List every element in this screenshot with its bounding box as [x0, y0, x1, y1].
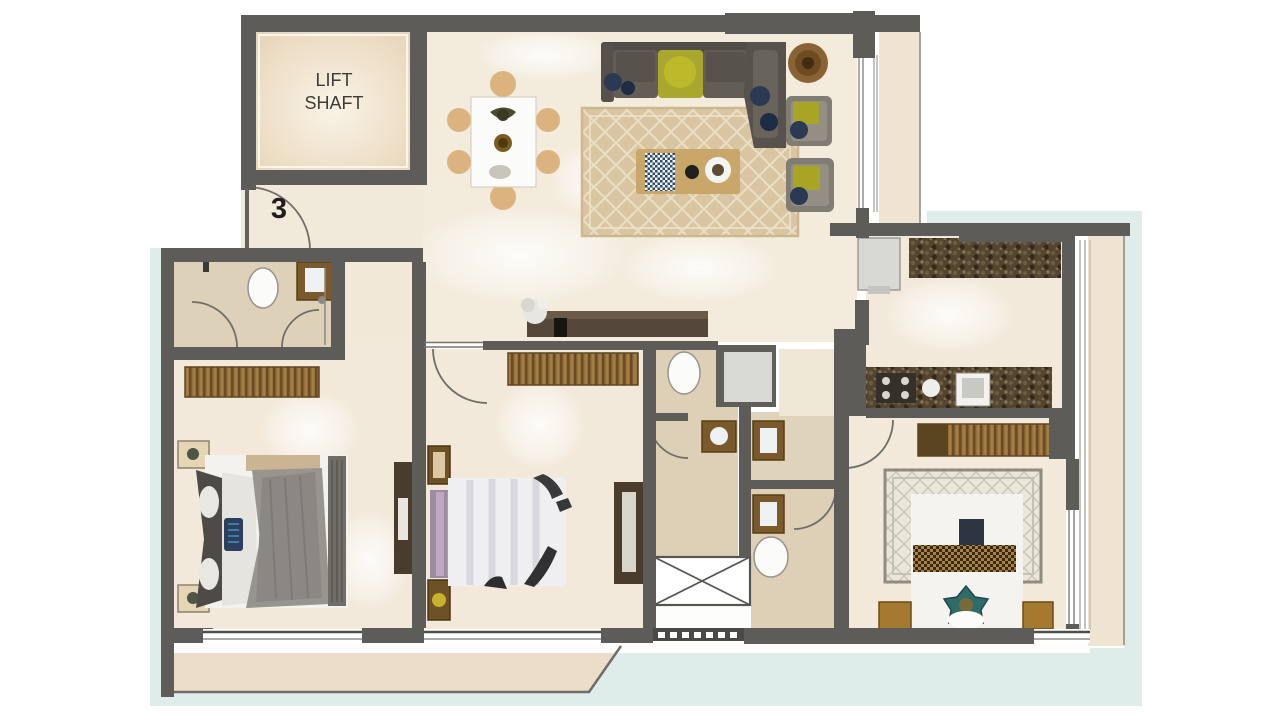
svg-text:3: 3: [271, 193, 287, 225]
svg-text:LIFT: LIFT: [315, 70, 352, 90]
svg-text:SHAFT: SHAFT: [304, 93, 363, 113]
